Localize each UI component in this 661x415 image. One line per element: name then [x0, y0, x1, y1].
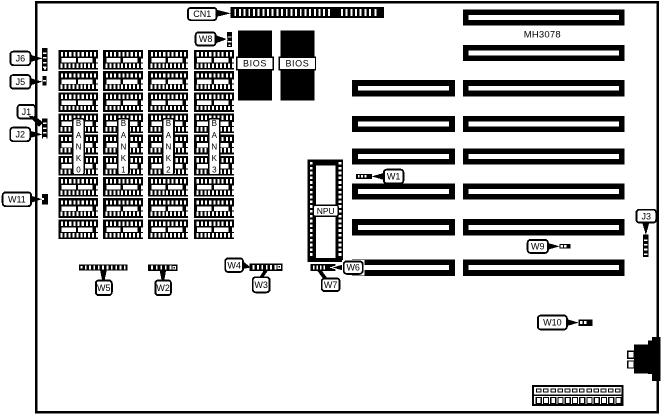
svg-text:W9: W9	[531, 242, 545, 252]
svg-text:3: 3	[212, 166, 217, 175]
svg-text:NPU: NPU	[317, 206, 335, 216]
svg-text:1: 1	[121, 166, 126, 175]
svg-text:A: A	[76, 131, 82, 140]
svg-text:B: B	[76, 119, 81, 128]
svg-text:N: N	[121, 142, 127, 151]
svg-text:BIOS: BIOS	[285, 59, 309, 69]
svg-text:K: K	[76, 154, 82, 163]
svg-text:J3: J3	[642, 211, 652, 221]
svg-text:A: A	[212, 131, 218, 140]
svg-text:W6: W6	[346, 263, 360, 273]
svg-text:B: B	[121, 119, 126, 128]
svg-text:W4: W4	[227, 260, 241, 270]
svg-text:B: B	[166, 119, 171, 128]
svg-text:MH3078: MH3078	[524, 30, 561, 41]
svg-text:W5: W5	[97, 283, 111, 293]
svg-text:W8: W8	[199, 34, 213, 44]
svg-text:W2: W2	[156, 283, 170, 293]
svg-text:BIOS: BIOS	[243, 59, 267, 69]
svg-text:A: A	[121, 131, 127, 140]
svg-text:J6: J6	[16, 54, 26, 64]
svg-text:K: K	[212, 154, 218, 163]
svg-text:J5: J5	[16, 77, 26, 87]
svg-text:N: N	[76, 142, 82, 151]
svg-text:K: K	[121, 154, 127, 163]
svg-text:K: K	[166, 154, 172, 163]
svg-text:2: 2	[166, 166, 171, 175]
svg-text:J2: J2	[15, 130, 25, 140]
svg-text:CN1: CN1	[193, 9, 211, 19]
svg-text:0: 0	[76, 166, 81, 175]
svg-text:W7: W7	[324, 280, 338, 290]
svg-text:W1: W1	[387, 172, 401, 182]
svg-text:N: N	[166, 142, 172, 151]
svg-text:N: N	[211, 142, 217, 151]
svg-text:W11: W11	[8, 194, 26, 204]
svg-text:B: B	[212, 119, 217, 128]
svg-text:W3: W3	[254, 280, 268, 290]
svg-text:A: A	[166, 131, 172, 140]
svg-text:W10: W10	[543, 318, 562, 328]
svg-text:J1: J1	[22, 107, 32, 117]
